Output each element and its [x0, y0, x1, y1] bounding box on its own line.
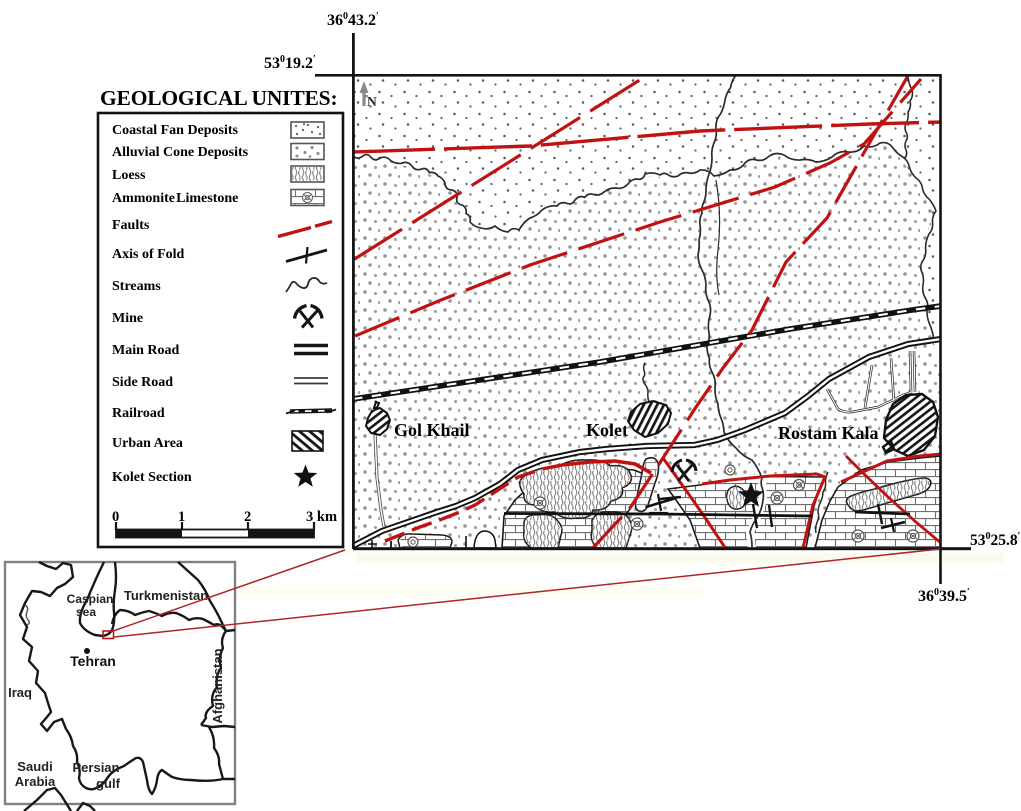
- svg-text:Faults: Faults: [112, 218, 150, 233]
- svg-text:Coastal Fan Deposits: Coastal Fan Deposits: [112, 123, 239, 138]
- svg-text:53025.8′: 53025.8′: [970, 531, 1021, 549]
- svg-text:Alluvial Cone Deposits: Alluvial Cone Deposits: [112, 145, 249, 160]
- svg-text:3 km: 3 km: [306, 509, 337, 525]
- svg-text:Kolet Section: Kolet Section: [112, 470, 192, 485]
- svg-text:Main Road: Main Road: [112, 343, 180, 358]
- svg-text:Mine: Mine: [112, 311, 143, 326]
- svg-text:Caspian: Caspian: [67, 592, 114, 606]
- svg-text:Loess: Loess: [112, 168, 146, 183]
- svg-text:Axis of Fold: Axis of Fold: [112, 247, 185, 262]
- svg-text:Gol Khail: Gol Khail: [394, 420, 470, 440]
- svg-text:Side Road: Side Road: [112, 375, 173, 390]
- svg-text:sea: sea: [76, 605, 96, 619]
- svg-text:Urban Area: Urban Area: [112, 436, 183, 451]
- svg-text:Kolet: Kolet: [586, 420, 628, 440]
- svg-text:Streams: Streams: [112, 279, 161, 294]
- svg-text:Saudi: Saudi: [17, 759, 52, 774]
- svg-text:53019.2′: 53019.2′: [264, 54, 316, 72]
- svg-text:Afghanistan: Afghanistan: [210, 648, 225, 723]
- svg-text:36039.5′: 36039.5′: [918, 587, 970, 605]
- svg-text:Persian: Persian: [73, 760, 120, 775]
- svg-text:Rostam Kala: Rostam Kala: [778, 423, 879, 443]
- svg-text:gulf: gulf: [96, 776, 120, 791]
- svg-text:Railroad: Railroad: [112, 406, 165, 421]
- svg-text:N: N: [367, 94, 377, 109]
- svg-text:Ammonite Limestone: Ammonite Limestone: [112, 191, 238, 206]
- svg-text:Arabia: Arabia: [15, 774, 56, 789]
- svg-text:36043.2′: 36043.2′: [327, 11, 379, 29]
- svg-text:GEOLOGICAL UNITES:: GEOLOGICAL UNITES:: [100, 86, 338, 110]
- svg-text:Tehran: Tehran: [70, 653, 116, 669]
- svg-text:Iraq: Iraq: [8, 685, 32, 700]
- svg-text:Turkmenistan: Turkmenistan: [124, 588, 208, 603]
